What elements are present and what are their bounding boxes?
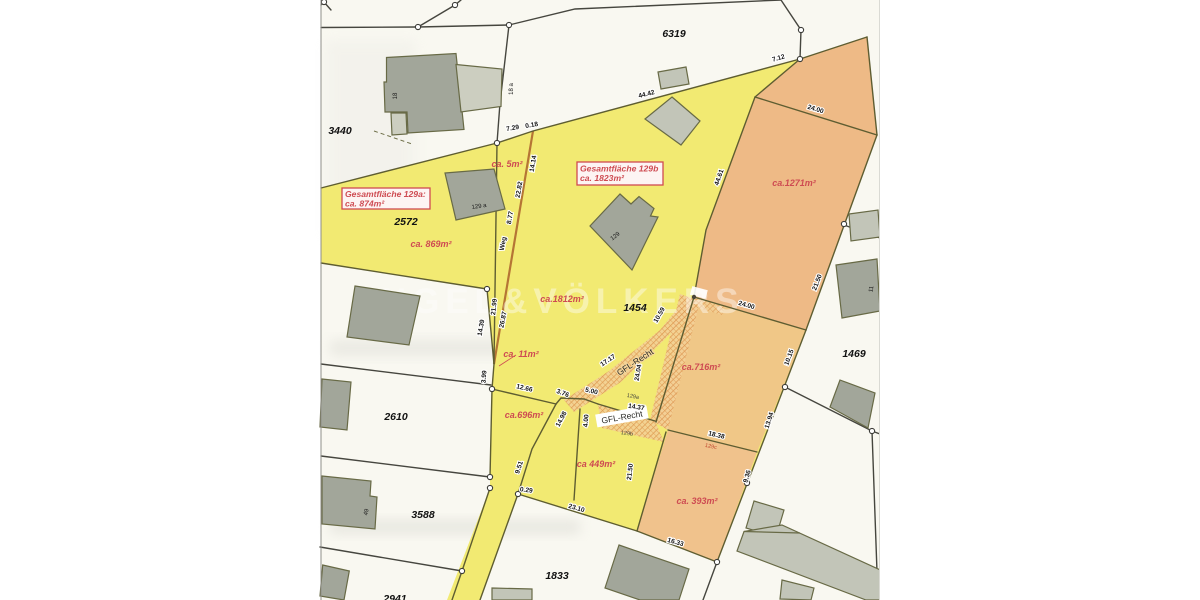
svg-text:2572: 2572 xyxy=(393,216,418,228)
svg-text:3440: 3440 xyxy=(328,125,352,137)
svg-text:ca 449m²: ca 449m² xyxy=(577,459,617,469)
svg-text:ca.716m²: ca.716m² xyxy=(682,362,722,372)
svg-text:3.99: 3.99 xyxy=(480,370,488,384)
svg-text:ca.1271m²: ca.1271m² xyxy=(772,178,817,188)
svg-text:ca. 869m²: ca. 869m² xyxy=(410,239,452,249)
svg-text:ca.696m²: ca.696m² xyxy=(505,410,545,420)
svg-text:ca.1812m²: ca.1812m² xyxy=(540,294,585,304)
svg-text:18: 18 xyxy=(393,92,399,99)
svg-text:6319: 6319 xyxy=(662,28,686,40)
svg-text:1833: 1833 xyxy=(545,570,569,582)
svg-text:1469: 1469 xyxy=(842,348,866,360)
svg-text:ca. 1823m²: ca. 1823m² xyxy=(580,173,625,183)
svg-text:Gesamtfläche 129b: Gesamtfläche 129b xyxy=(580,164,658,174)
svg-text:3588: 3588 xyxy=(411,509,435,521)
svg-text:18 a: 18 a xyxy=(509,83,515,95)
svg-text:ca. 874m²: ca. 874m² xyxy=(345,199,385,209)
svg-text:ca. 393m²: ca. 393m² xyxy=(676,496,718,506)
svg-text:Gesamtfläche 129a:: Gesamtfläche 129a: xyxy=(345,189,426,199)
svg-text:4.00: 4.00 xyxy=(582,414,590,428)
svg-text:ca. 11m²: ca. 11m² xyxy=(503,349,539,359)
svg-text:2941: 2941 xyxy=(382,593,407,600)
svg-text:2610: 2610 xyxy=(383,411,408,423)
svg-text:1454: 1454 xyxy=(623,302,647,314)
svg-text:ca. 5m²: ca. 5m² xyxy=(491,159,523,169)
